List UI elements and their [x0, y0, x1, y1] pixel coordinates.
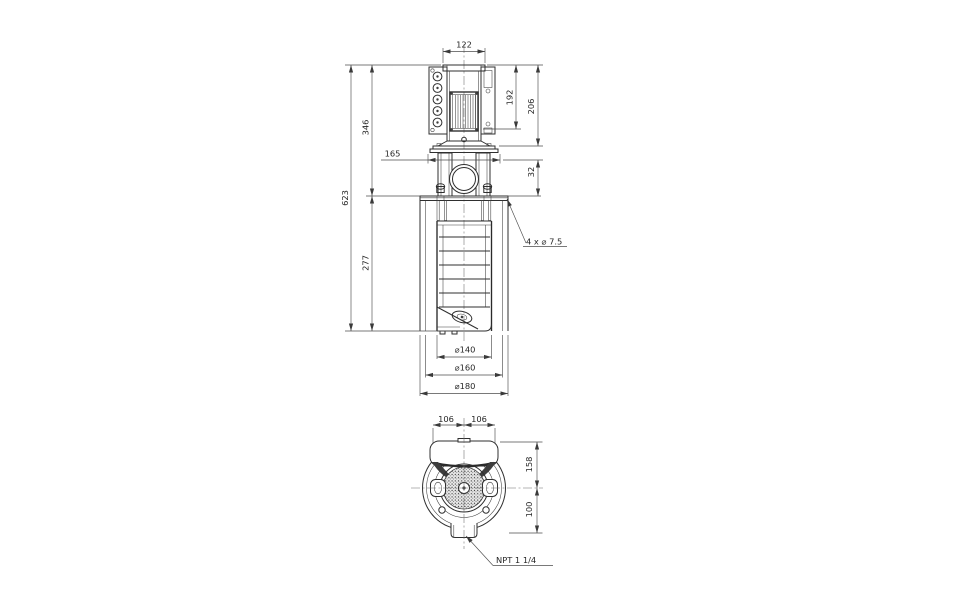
- motor-front: [429, 65, 495, 146]
- dim-motor-core-height: 192: [505, 90, 515, 106]
- front-view: 122 623 346 277 192: [340, 40, 567, 397]
- dim-center-to-box: 158: [524, 457, 534, 473]
- dim-flange-offset: 32: [526, 167, 536, 178]
- dim-motor-width: 122: [456, 40, 472, 50]
- dim-center-to-outlet: 100: [524, 502, 534, 518]
- note-connection: NPT 1 1/4: [496, 555, 536, 565]
- dim-half-width-left: 106: [438, 414, 454, 424]
- dim-dia-mount-flange: ⌀180: [455, 381, 476, 391]
- dim-sleeve-section: 277: [361, 255, 371, 271]
- dim-coupling-flange-width: 165: [385, 149, 401, 159]
- dim-dia-chambers: ⌀140: [455, 345, 476, 355]
- terminal-box-front: [429, 67, 447, 134]
- dim-dia-sleeve: ⌀160: [455, 363, 476, 373]
- pump-dimensional-drawing: 122 623 346 277 192: [0, 0, 976, 600]
- top-view: 106 106 158 100 NPT 1 1/4: [411, 414, 553, 566]
- dim-half-width-right: 106: [471, 414, 487, 424]
- drawing-canvas: 122 623 346 277 192: [0, 0, 976, 600]
- dim-top-to-mount-flange: 346: [361, 120, 371, 136]
- dim-total-length: 623: [340, 190, 350, 206]
- port-circle: [450, 165, 479, 194]
- dimensions-front: 122 623 346 277 192: [340, 40, 567, 396]
- dim-motor-total-height: 206: [526, 99, 536, 115]
- suction-interconnector: [451, 309, 473, 325]
- note-mount-holes: 4 x ⌀ 7.5: [526, 237, 562, 247]
